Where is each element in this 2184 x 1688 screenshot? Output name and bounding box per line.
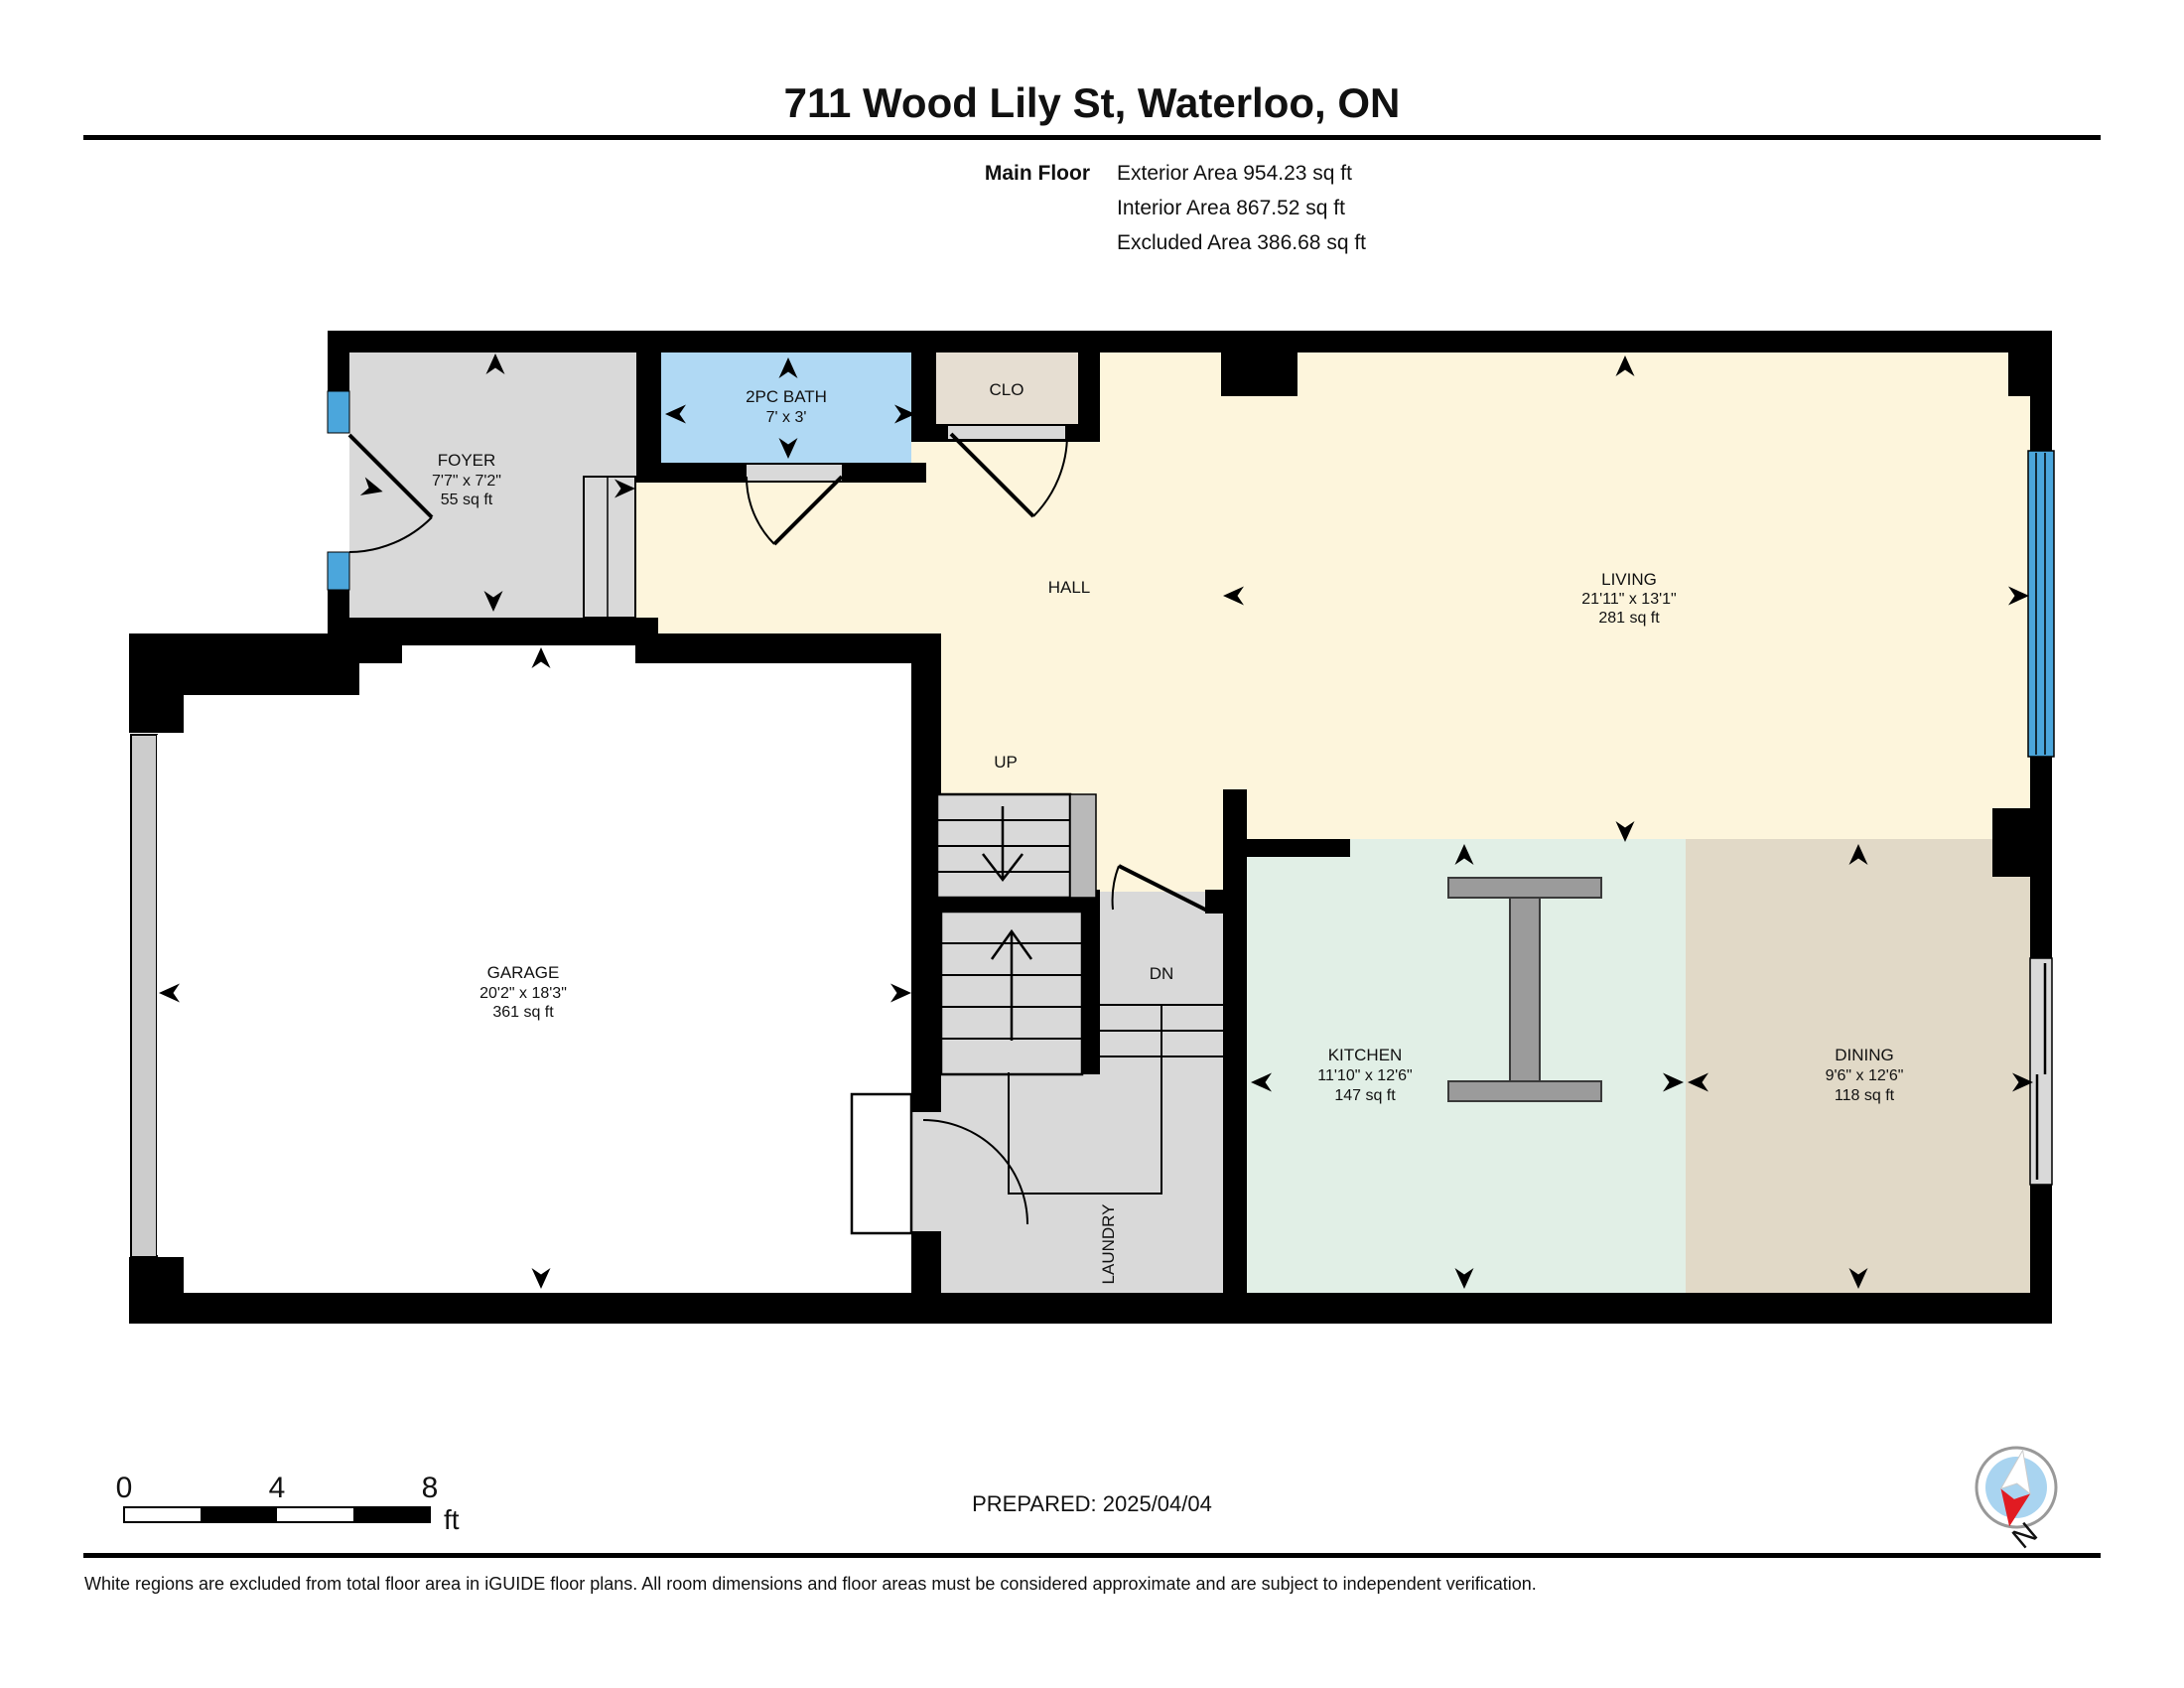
closet-door-sill <box>948 426 1065 439</box>
foyer-label: FOYER <box>438 451 496 470</box>
living-area: 281 sq ft <box>1598 610 1660 627</box>
kitchen-label: KITCHEN <box>1328 1046 1403 1064</box>
dining-area: 118 sq ft <box>1835 1087 1895 1104</box>
dining-dims: 9'6" x 12'6" <box>1826 1067 1904 1084</box>
excluded-area: Excluded Area 386.68 sq ft <box>1117 231 1366 254</box>
kitchen-dims: 11'10" x 12'6" <box>1317 1067 1412 1084</box>
garage-wall-recess <box>402 645 635 663</box>
living-dims: 21'11" x 13'1" <box>1581 591 1676 608</box>
garage-area: 361 sq ft <box>492 1004 554 1021</box>
foyer-window-2 <box>328 552 349 590</box>
header-divider <box>83 135 2101 140</box>
foyer-dims: 7'7" x 7'2" <box>432 473 501 490</box>
dining-sliding-door <box>2030 958 2052 1185</box>
interior-area: Interior Area 867.52 sq ft <box>1117 197 1345 219</box>
living-label: LIVING <box>1601 570 1657 589</box>
closet-label: CLO <box>990 380 1024 399</box>
stairs-up <box>937 794 1096 898</box>
exterior-area: Exterior Area 954.23 sq ft <box>1117 162 1352 185</box>
laundry-door-sill <box>911 1112 941 1231</box>
garage-label: GARAGE <box>487 963 560 982</box>
laundry-label: LAUNDRY <box>1099 1204 1118 1285</box>
floor-plan: FOYER 7'7" x 7'2" 55 sq ft 2PC BATH 7' x… <box>129 331 2054 1324</box>
disclaimer-text: White regions are excluded from total fl… <box>84 1574 1537 1594</box>
scale-tick-0: 0 <box>116 1472 133 1504</box>
dining-label: DINING <box>1835 1046 1894 1064</box>
scale-tick-8: 8 <box>422 1472 439 1504</box>
kitchen-floor <box>1247 839 1686 1296</box>
kitchen-area: 147 sq ft <box>1334 1087 1396 1104</box>
floor-plan-image: 711 Wood Lily St, Waterloo, ON Main Floo… <box>0 0 2184 1688</box>
foyer-window-1 <box>328 391 349 433</box>
entry-door-opening <box>328 433 349 552</box>
floor-label: Main Floor <box>985 162 1090 185</box>
foyer-area: 55 sq ft <box>441 492 493 508</box>
garage-dims: 20'2" x 18'3" <box>479 985 567 1002</box>
page-title: 711 Wood Lily St, Waterloo, ON <box>784 79 1401 126</box>
laundry-floor <box>941 1072 1223 1293</box>
footer-divider <box>83 1553 2101 1558</box>
floor-plan-page: 711 Wood Lily St, Waterloo, ON Main Floo… <box>0 0 2184 1688</box>
scale-unit: ft <box>444 1504 460 1535</box>
scale-tick-4: 4 <box>269 1472 286 1504</box>
hall-label: HALL <box>1048 578 1091 597</box>
living-window <box>2028 451 2054 757</box>
stairs-lower <box>941 912 1082 1074</box>
foyer-railing <box>584 477 635 618</box>
bath-label: 2PC BATH <box>746 387 827 406</box>
bath-dims: 7' x 3' <box>766 409 807 426</box>
bath-door-sill <box>747 465 842 481</box>
stairs-down-label: DN <box>1150 964 1174 983</box>
stairs-up-label: UP <box>994 753 1018 772</box>
prepared-date: PREPARED: 2025/04/04 <box>972 1491 1212 1516</box>
